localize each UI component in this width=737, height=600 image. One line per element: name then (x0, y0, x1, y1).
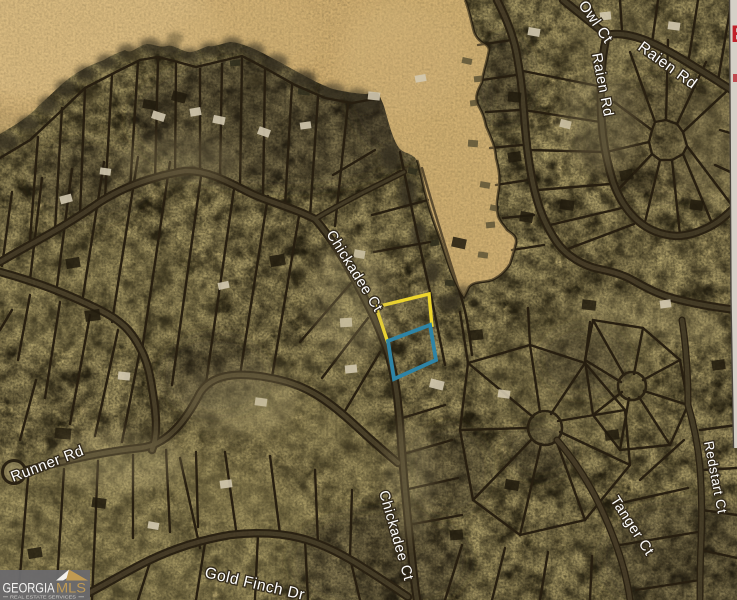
svg-text:MLS: MLS (56, 581, 86, 596)
svg-text:GEORGIA: GEORGIA (3, 581, 55, 596)
svg-text:E: E (731, 21, 737, 48)
svg-text:REAL ESTATE SERVICES: REAL ESTATE SERVICES (10, 594, 76, 599)
